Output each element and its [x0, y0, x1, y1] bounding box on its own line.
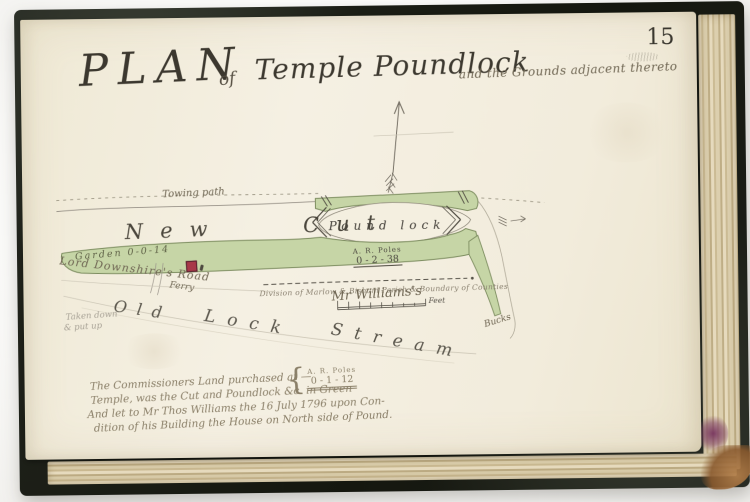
brace-glyph: {: [286, 365, 306, 396]
boundary-end-dot: [471, 277, 474, 280]
plan-page: PLAN of Temple Poundlock and the Grounds…: [20, 12, 701, 460]
north-shore-line: [56, 201, 315, 211]
page-number: 15: [646, 25, 674, 50]
north-arrow-icon: [384, 102, 405, 194]
cut-area-measure: A. R. Poles 0 - 2 - 38: [353, 246, 403, 267]
towing-path-dashes-right: [474, 197, 544, 204]
green-point: [469, 235, 501, 316]
pencil-smudge: [627, 52, 659, 61]
cut-area-value: 0 - 2 - 38: [353, 254, 402, 268]
photograph-backdrop: PLAN of Temple Poundlock and the Grounds…: [0, 0, 750, 502]
page-stack-right-edge: [698, 14, 741, 469]
title-word-of: of: [218, 69, 236, 91]
pound-lock-label: Pound lock: [329, 218, 446, 233]
pencil-guide-line: [374, 132, 454, 136]
memo-area-value: 0 - 1 - 12: [308, 375, 357, 391]
scale-feet-label: Feet: [429, 296, 446, 305]
memo-measure: { A. R. Poles 0 - 1 - 12: [286, 363, 357, 396]
flow-arrow-icon: [499, 216, 526, 226]
atlas-book: PLAN of Temple Poundlock and the Grounds…: [14, 1, 750, 496]
